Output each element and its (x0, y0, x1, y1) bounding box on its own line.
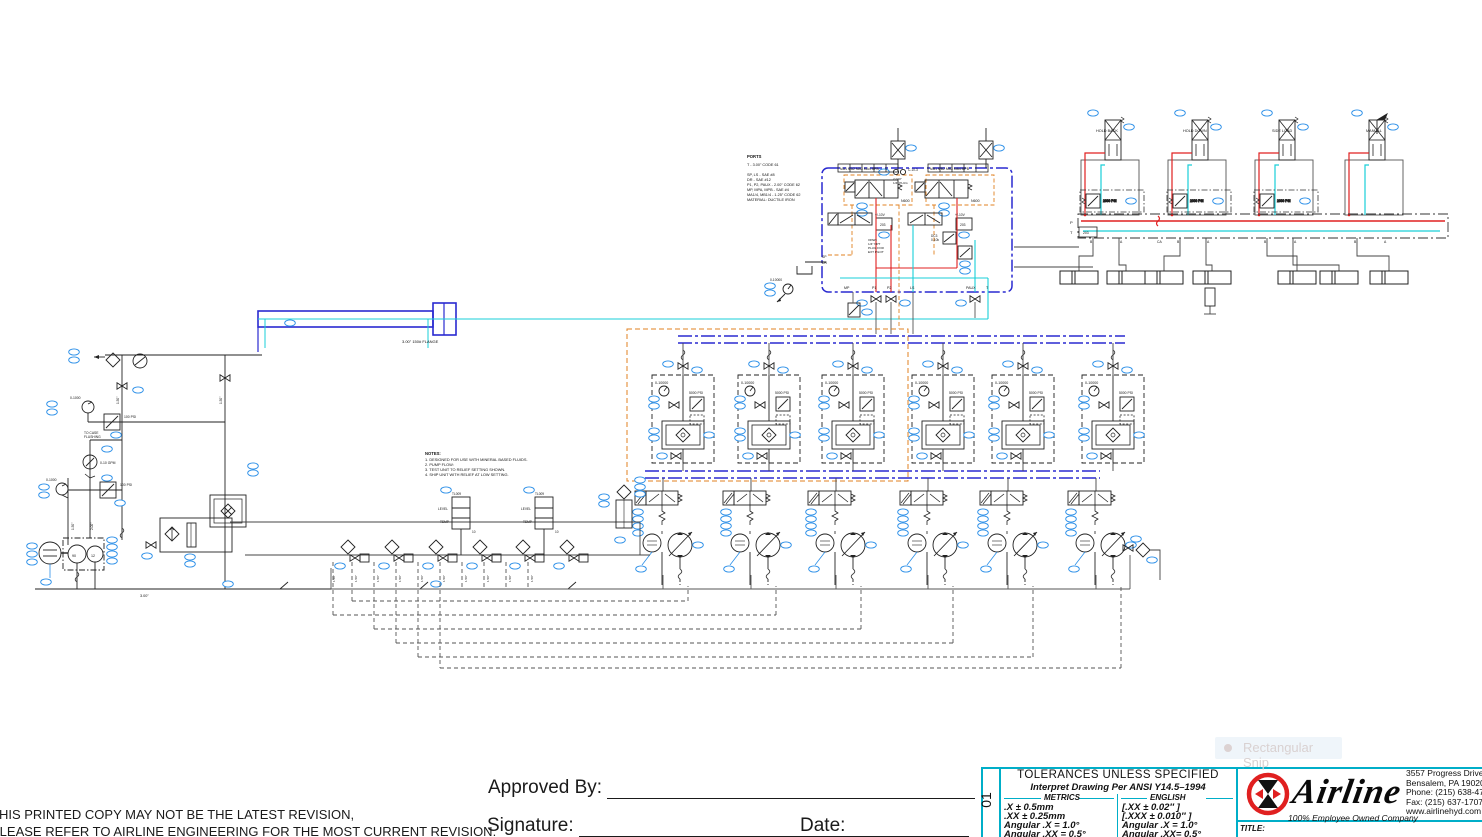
svg-text:C-10-3: C-10-3 (908, 168, 918, 172)
svg-text:N600: N600 (901, 199, 910, 203)
company-name: Airline (1289, 772, 1404, 812)
svg-text:3.00": 3.00" (140, 594, 149, 598)
svg-text:MP: MP (844, 286, 850, 290)
approved-by-row: Approved By: (488, 777, 975, 799)
valve-stations (1014, 110, 1448, 314)
airline-logo-icon (1243, 770, 1293, 820)
notes-title: NOTES: (425, 451, 441, 456)
svg-text:1.50": 1.50" (354, 575, 358, 582)
svg-text:PAUX: PAUX (966, 286, 976, 290)
svg-text:1.50": 1.50" (332, 575, 336, 582)
svg-text:A: A (1207, 240, 1210, 244)
top-ports-b: MB1 MB2 MB3 MB4 MPB (930, 167, 970, 171)
svg-text:T: T (1070, 230, 1073, 235)
station-label: MANUAL (1366, 129, 1382, 133)
tolerances-title: TOLERANCES UNLESS SPECIFIED (1000, 769, 1236, 781)
svg-text:DR - SAE #12: DR - SAE #12 (747, 178, 771, 182)
svg-text:FLUSHING: FLUSHING (84, 435, 101, 439)
metrics-header: METRICS (1044, 793, 1080, 802)
svg-text:1.50": 1.50" (420, 575, 424, 582)
svg-text:1.50": 1.50" (71, 523, 75, 530)
snip-tooltip: Rectangular Snip (1215, 737, 1342, 759)
svg-text:+/-10V: +/-10V (875, 213, 886, 217)
svg-text:4. SHIP UNIT WITH RELIEF AT LO: 4. SHIP UNIT WITH RELIEF AT LOW SETTING. (425, 472, 509, 477)
date-row: Date: (800, 815, 969, 837)
svg-text:1.50": 1.50" (116, 397, 120, 404)
central-manifold (765, 128, 1012, 334)
svg-text:EXT PILOT: EXT PILOT (868, 250, 884, 254)
svg-text:0-10000: 0-10000 (770, 278, 782, 282)
svg-text:1.50": 1.50" (219, 397, 223, 404)
svg-text:1.50": 1.50" (464, 575, 468, 582)
tolerances-subtitle: Interpret Drawing Per ANSI Y14.5–1994 (1000, 782, 1236, 793)
svg-text:LEVEL: LEVEL (521, 507, 531, 511)
sheet-code: 01 (978, 792, 994, 808)
svg-text:0-1000: 0-1000 (70, 396, 81, 400)
schematic-text: HOLD BACK HOLD DOWN SIDE LOAD MANUAL POR… (46, 129, 1387, 598)
company-tagline: 100% Employee Owned Company (1288, 813, 1418, 823)
svg-text:203: 203 (1083, 231, 1089, 235)
svg-text:A: A (1384, 240, 1387, 244)
svg-text:0-1000: 0-1000 (46, 478, 57, 482)
svg-text:0-10k: 0-10k (931, 238, 939, 242)
svg-text:MP, MPA, MPB - SAE #4: MP, MPA, MPB - SAE #4 (747, 188, 789, 192)
manifold-buses (627, 329, 1132, 491)
svg-text:P1, P2, PAUX - 2.00" CODE 62: P1, P2, PAUX - 2.00" CODE 62 (747, 183, 800, 187)
drawing-viewport: 0-10000 5000 PSI (0, 0, 1482, 837)
station-label: HOLD DOWN (1183, 129, 1207, 133)
revision-warning-line1: THIS PRINTED COPY MAY NOT BE THE LATEST … (0, 806, 496, 823)
svg-text:90: 90 (72, 554, 76, 558)
ports-note-title: PORTS (747, 154, 762, 159)
svg-text:TEMP: TEMP (440, 520, 449, 524)
svg-text:N600: N600 (971, 199, 980, 203)
svg-text:P2: P2 (887, 286, 891, 290)
hydraulic-schematic: 0-10000 5000 PSI (0, 0, 1482, 837)
snip-dot-icon (1224, 744, 1232, 752)
svg-text:T - 3.00" CODE 61: T - 3.00" CODE 61 (747, 163, 779, 167)
svg-text:SP, LS - SAE #8: SP, LS - SAE #8 (747, 173, 775, 177)
svg-text:1.50": 1.50" (442, 575, 446, 582)
svg-text:A: A (1294, 240, 1297, 244)
svg-text:1.50": 1.50" (398, 575, 402, 582)
svg-text:P1: P1 (872, 286, 876, 290)
signature-label: Signature: (487, 815, 574, 836)
date-label: Date: (800, 815, 845, 836)
english-header: ENGLISH (1150, 793, 1186, 802)
svg-text:203: 203 (880, 223, 886, 227)
svg-text:100 PSI: 100 PSI (124, 415, 136, 419)
svg-text:1.50": 1.50" (486, 575, 490, 582)
svg-text:10: 10 (472, 530, 476, 534)
svg-text:P: P (1070, 220, 1073, 225)
svg-text:1.50": 1.50" (530, 575, 534, 582)
top-ports-a: MA1 MA2 MA3 MA4 MPA (840, 167, 879, 171)
svg-text:10: 10 (555, 530, 559, 534)
snip-tooltip-text: Rectangular Snip (1243, 740, 1342, 770)
svg-text:A: A (1120, 240, 1123, 244)
svg-text:203: 203 (960, 223, 966, 227)
svg-text:1/4" PLUG: 1/4" PLUG (893, 181, 908, 185)
svg-text:SP: SP (822, 255, 827, 259)
pump-unit (27, 349, 640, 589)
svg-text:LS: LS (910, 286, 915, 290)
svg-text:TL009: TL009 (452, 492, 461, 496)
svg-text:TL009: TL009 (535, 492, 544, 496)
svg-text:2.00": 2.00" (90, 523, 94, 530)
date-line[interactable] (851, 820, 969, 837)
approved-by-line[interactable] (607, 782, 975, 799)
svg-text:1.50": 1.50" (508, 575, 512, 582)
revision-warning: THIS PRINTED COPY MAY NOT BE THE LATEST … (0, 806, 496, 837)
flange-label: 3.00" 150# FLANGE (402, 339, 439, 344)
svg-text:LEVEL: LEVEL (438, 507, 448, 511)
svg-text:+/-10V: +/-10V (955, 213, 966, 217)
svg-text:TEMP: TEMP (523, 520, 532, 524)
filter-modules (649, 375, 1145, 463)
title-label: TITLE: (1240, 824, 1265, 833)
svg-text:12: 12 (91, 554, 95, 558)
approved-by-label: Approved By: (488, 777, 602, 798)
company-address: 3557 Progress Drive, Bensalem, PA 19020 … (1406, 769, 1482, 817)
svg-text:MATERIAL: DUCTILE IRON: MATERIAL: DUCTILE IRON (747, 198, 795, 202)
svg-text:100 PSI: 100 PSI (120, 483, 132, 487)
svg-text:DR: DR (822, 261, 827, 265)
svg-text:1.50": 1.50" (376, 575, 380, 582)
svg-text:MA1/4, MB1/4 - 1.25" CODE 62: MA1/4, MB1/4 - 1.25" CODE 62 (747, 193, 800, 197)
svg-text:0-10 GPM: 0-10 GPM (100, 461, 116, 465)
pump-modules (633, 491, 1160, 585)
svg-text:CA: CA (1157, 240, 1162, 244)
suction-pipe-flange (258, 303, 988, 352)
station-label: HOLD BACK (1096, 129, 1118, 133)
revision-warning-line2: PLEASE REFER TO AIRLINE ENGINEERING FOR … (0, 823, 496, 837)
station-label: SIDE LOAD (1272, 129, 1293, 133)
